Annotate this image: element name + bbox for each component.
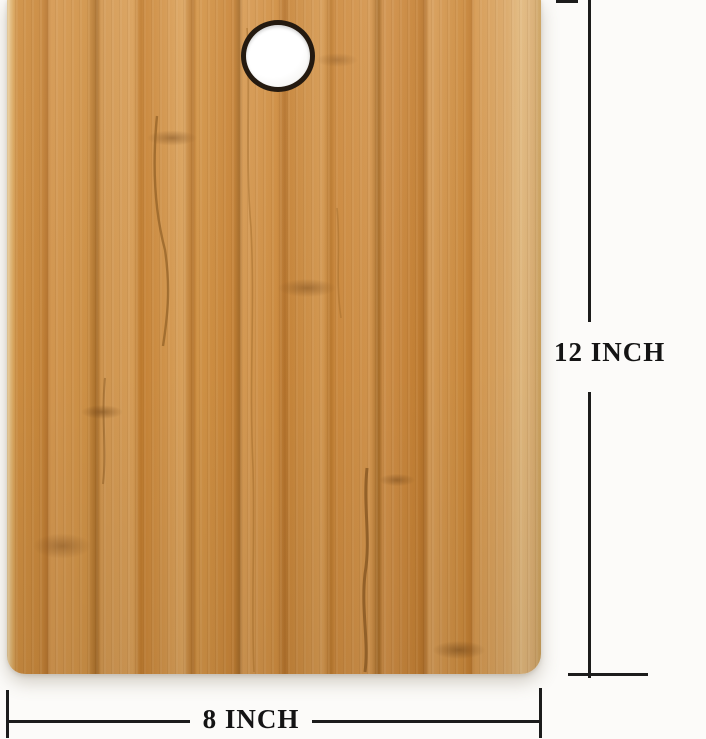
wood-grain-seams — [7, 0, 541, 674]
height-dimension-top-tick — [556, 0, 578, 3]
hanging-hole — [241, 20, 315, 92]
width-label: 8 INCH — [188, 706, 314, 733]
height-dimension-bottom-tick — [568, 673, 648, 676]
product-image-canvas: 12 INCH 8 INCH — [0, 0, 706, 739]
height-dimension-line-upper — [588, 0, 591, 322]
height-label: 12 INCH — [554, 339, 665, 366]
width-dimension-right-tick — [539, 688, 542, 738]
width-dimension-line-right — [312, 720, 541, 723]
width-dimension-left-tick — [6, 690, 9, 738]
height-dimension-line-lower — [588, 392, 591, 678]
bamboo-cutting-board — [7, 0, 541, 674]
width-dimension-line-left — [7, 720, 190, 723]
